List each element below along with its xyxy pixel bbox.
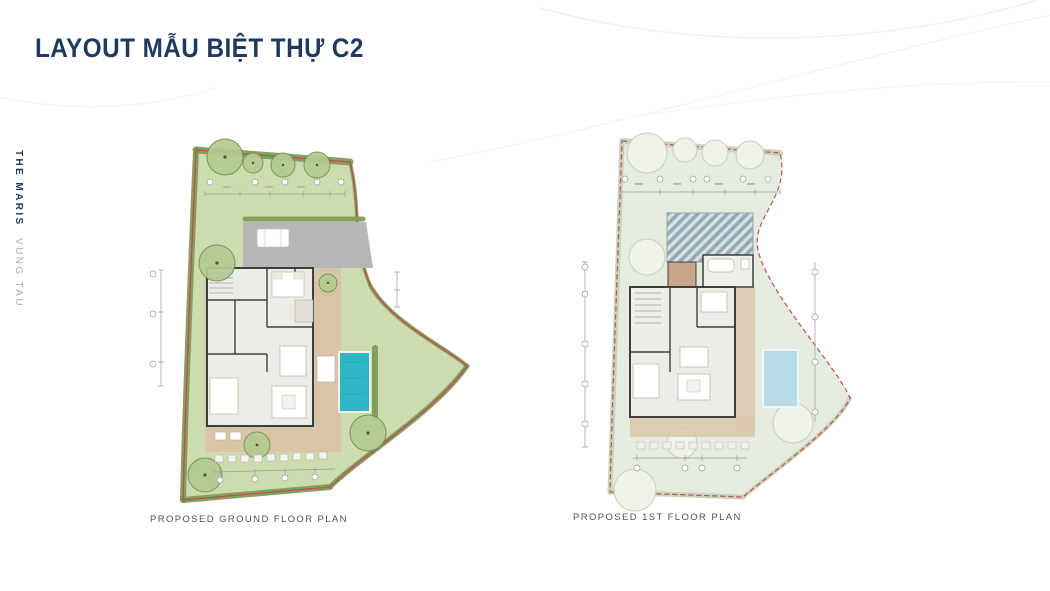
tree-icon xyxy=(271,153,295,177)
tree-icon xyxy=(629,239,665,275)
tree-icon xyxy=(627,133,667,173)
tree-icon xyxy=(673,138,697,162)
lounger xyxy=(230,432,241,440)
tree-icon xyxy=(350,415,386,451)
plan-ground-floor xyxy=(145,122,475,512)
plan-caption-ground: PROPOSED GROUND FLOOR PLAN xyxy=(150,514,348,525)
tree-icon xyxy=(188,458,222,492)
kitchen-counter xyxy=(295,300,313,322)
bed xyxy=(701,292,727,312)
car xyxy=(257,229,289,247)
tree-icon xyxy=(207,139,243,175)
slide-canvas: LAYOUT MẪU BIỆT THỰ C2 THE MARIS VUNG TA… xyxy=(0,0,1050,591)
balcony-room xyxy=(668,262,696,287)
tree-icon xyxy=(304,152,330,178)
first-floor-plan-drawing xyxy=(575,122,865,512)
swimming-pool-below xyxy=(763,350,798,407)
tree-icon xyxy=(244,432,270,458)
tree-icon xyxy=(736,141,764,169)
tree-icon xyxy=(243,153,263,173)
tree-icon xyxy=(319,274,337,292)
bed xyxy=(633,364,659,398)
tree-icon xyxy=(614,469,656,511)
family-table xyxy=(680,347,708,367)
brand-watermark: THE MARIS VUNG TAU xyxy=(13,150,24,308)
bed xyxy=(210,378,238,414)
tree-icon xyxy=(199,245,235,281)
tree-icon xyxy=(702,140,728,166)
outdoor-dining xyxy=(317,356,335,382)
tree-icon xyxy=(773,403,813,443)
toilet xyxy=(741,259,749,269)
paver-path xyxy=(637,442,749,449)
plan-first-floor xyxy=(575,122,865,512)
balcony-strip xyxy=(735,287,755,432)
plan-caption-first: PROPOSED 1ST FLOOR PLAN xyxy=(573,512,742,523)
driveway xyxy=(243,219,373,268)
balcony-strip xyxy=(630,417,755,437)
bathtub xyxy=(708,259,734,272)
brand-location: VUNG TAU xyxy=(13,238,24,308)
house-footprint xyxy=(205,268,341,452)
brand-name: THE MARIS xyxy=(13,150,24,227)
page-title: LAYOUT MẪU BIỆT THỰ C2 xyxy=(35,33,364,64)
ground-floor-plan-drawing xyxy=(145,122,475,512)
lounger xyxy=(215,432,226,440)
dining-table xyxy=(280,346,306,376)
swimming-pool xyxy=(339,348,375,418)
